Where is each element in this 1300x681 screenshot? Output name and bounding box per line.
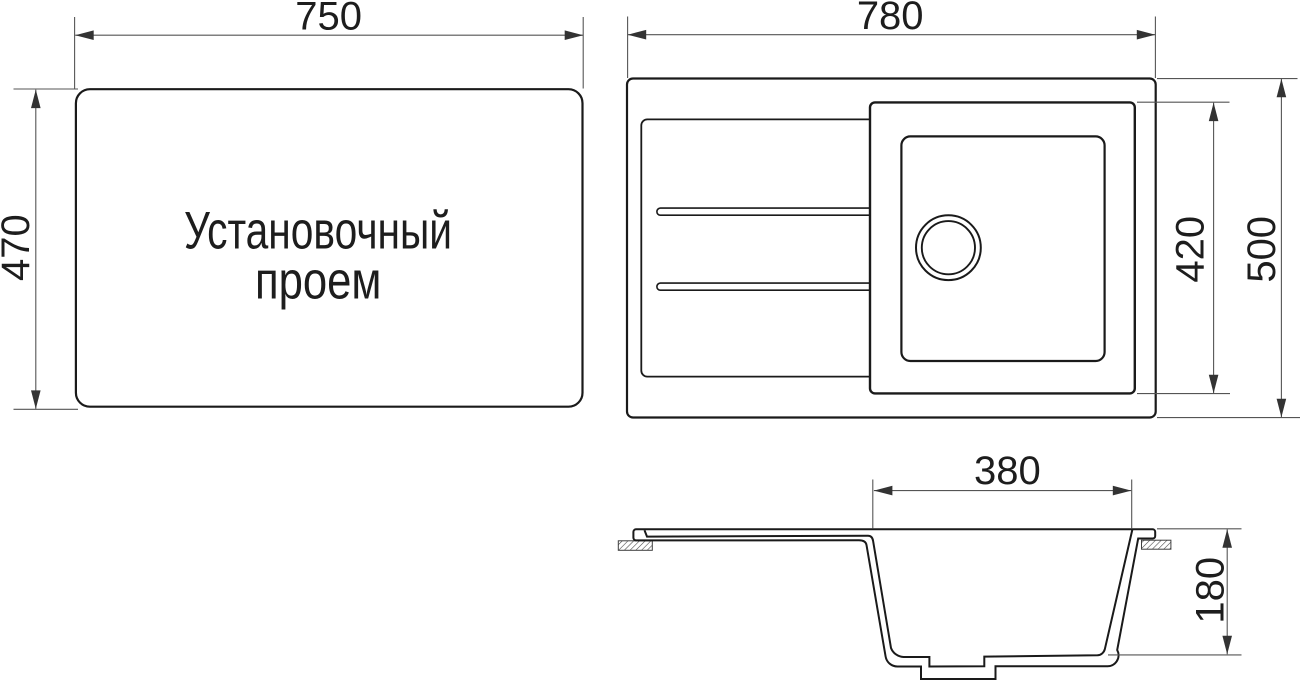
svg-text:750: 750 (295, 0, 362, 38)
svg-text:420: 420 (1169, 216, 1213, 283)
svg-text:180: 180 (1189, 557, 1233, 624)
svg-text:380: 380 (974, 449, 1041, 493)
svg-text:500: 500 (1240, 216, 1284, 283)
svg-text:470: 470 (0, 214, 38, 281)
svg-text:проем: проем (255, 252, 382, 311)
svg-text:780: 780 (857, 0, 924, 38)
